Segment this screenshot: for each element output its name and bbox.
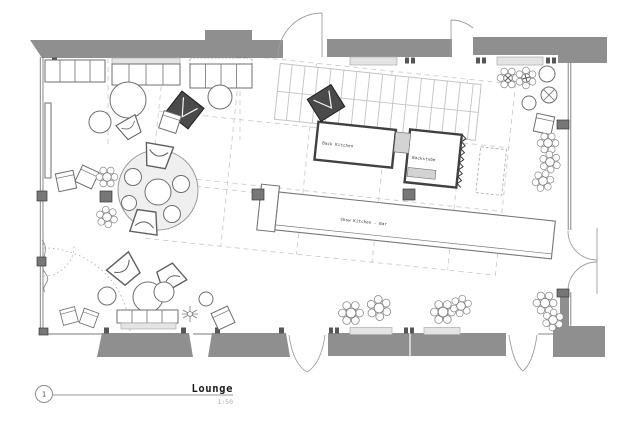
bottom-double-door-east — [509, 335, 537, 371]
right-double-door-swing — [568, 231, 597, 291]
bottom-wall-c — [328, 333, 506, 356]
round-sofa-cluster — [118, 143, 198, 236]
parasol-table — [541, 87, 557, 103]
kitchen-vestibule — [394, 132, 411, 153]
round-pouf — [98, 287, 116, 305]
round-pouf — [199, 292, 213, 306]
top-wall-middle — [327, 39, 452, 57]
side-chair — [533, 113, 554, 134]
round-table — [110, 82, 146, 118]
lounge-group-lower-left — [60, 252, 235, 330]
column — [252, 189, 264, 200]
column — [557, 120, 569, 129]
table-with-chairs — [536, 148, 564, 175]
side-door-top-swing — [451, 20, 473, 28]
table-with-chairs — [93, 204, 120, 230]
plant — [182, 306, 198, 322]
side-chair — [79, 308, 99, 328]
sheet-number: 1 — [42, 391, 46, 399]
round-seat — [173, 176, 190, 193]
bench-sofa-bottom — [117, 310, 178, 329]
round-seat — [122, 196, 137, 211]
curtain-swing-dotted-small — [44, 246, 74, 276]
entry-door-top-swing — [278, 13, 322, 57]
planter-box — [350, 328, 392, 335]
column — [37, 257, 46, 266]
table-with-chairs — [430, 301, 455, 324]
table-with-chairs — [537, 133, 559, 153]
center-table — [145, 179, 171, 205]
bottom-wall-b — [208, 333, 290, 357]
round-pouf — [154, 282, 174, 302]
armchair — [107, 252, 144, 288]
table-with-chairs — [363, 292, 395, 323]
column — [557, 289, 569, 297]
wall-shelf-right — [497, 57, 543, 65]
round-seat — [164, 206, 181, 223]
bottom-double-door-west — [289, 335, 325, 372]
column — [403, 189, 415, 200]
drawing-title: Lounge — [191, 383, 233, 395]
title-block: 1 Lounge 1:50 — [36, 383, 234, 406]
corner-column — [39, 328, 48, 335]
round-seat — [125, 169, 142, 186]
top-wall-pier — [205, 30, 252, 40]
table-with-chairs — [338, 302, 363, 325]
radiator — [45, 103, 51, 178]
column — [37, 191, 47, 201]
side-chair — [60, 307, 79, 326]
service-zone-dashed — [476, 147, 507, 195]
round-pouf — [522, 96, 536, 110]
round-pouf — [89, 111, 111, 133]
floor-plan-canvas: Back Kitchen Backstube Show Kitchen - Ba… — [0, 0, 630, 442]
planter-box — [424, 328, 460, 335]
bench-row-1 — [45, 60, 105, 82]
column — [100, 191, 112, 202]
bottom-wall-d — [553, 326, 605, 357]
drawing-scale: 1:50 — [217, 398, 233, 406]
table-with-chairs — [96, 167, 118, 187]
armchair — [116, 115, 144, 142]
side-chair — [75, 165, 99, 189]
side-chair — [211, 306, 235, 330]
round-table — [539, 66, 555, 82]
top-wall-left — [30, 40, 283, 58]
bottom-wall-a — [97, 333, 193, 357]
wall-shelf-center — [350, 57, 397, 65]
bench-row-3 — [190, 58, 252, 88]
round-pouf — [208, 85, 232, 109]
bench-row-2 — [112, 58, 180, 85]
side-chair — [55, 170, 76, 191]
